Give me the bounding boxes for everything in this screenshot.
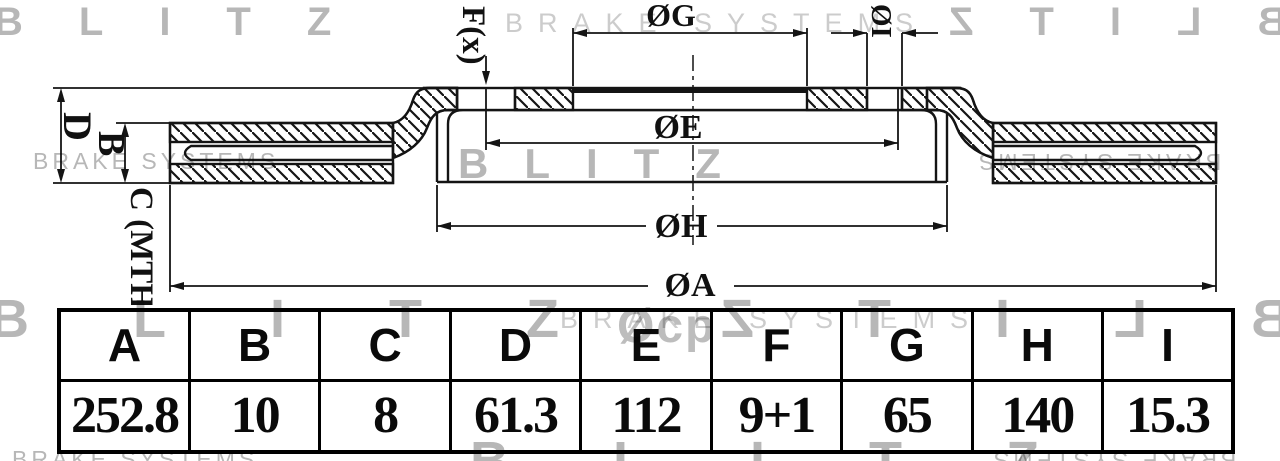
- brake-disc-cross-section-drawing: D B C (MTH) F(x) ØG ØI ØE ØH ØA: [0, 0, 1280, 305]
- dim-line-i: [831, 33, 938, 86]
- dim-label-dia-g: ØG: [646, 0, 696, 33]
- dim-line-g: [573, 28, 807, 86]
- dimension-spec-table: A B C D E F G H I 252.8 10 8 61.3 112 9+…: [57, 308, 1235, 454]
- dim-label-dia-i: ØI: [865, 4, 897, 38]
- value-h: 140: [972, 380, 1102, 452]
- dimension-labels: D B C (MTH) F(x) ØG ØI ØE ØH ØA: [55, 0, 897, 305]
- col-header-d: D: [450, 310, 580, 380]
- friction-ring-left: [170, 123, 393, 183]
- spec-table-header-row: A B C D E F G H I: [59, 310, 1233, 380]
- friction-ring-right: [993, 123, 1216, 183]
- col-header-e: E: [581, 310, 711, 380]
- col-header-f: F: [711, 310, 841, 380]
- dim-label-dia-a: ØA: [665, 267, 716, 304]
- dim-label-dia-h: ØH: [655, 208, 708, 245]
- dim-label-c-mth: C (MTH): [123, 187, 159, 305]
- col-header-i: I: [1103, 310, 1234, 380]
- value-g: 65: [842, 380, 972, 452]
- dim-label-f: F(x): [455, 6, 491, 65]
- col-header-b: B: [189, 310, 319, 380]
- value-c: 8: [320, 380, 450, 452]
- value-d: 61.3: [450, 380, 580, 452]
- col-header-g: G: [842, 310, 972, 380]
- value-i: 15.3: [1103, 380, 1234, 452]
- col-header-h: H: [972, 310, 1102, 380]
- dim-label-dia-e: ØE: [653, 109, 702, 146]
- col-header-c: C: [320, 310, 450, 380]
- value-a: 252.8: [59, 380, 189, 452]
- pilot-recess-band: [573, 88, 807, 93]
- value-b: 10: [189, 380, 319, 452]
- value-f: 9+1: [711, 380, 841, 452]
- brake-disc-spec-sheet: D B C (MTH) F(x) ØG ØI ØE ØH ØA A B C D …: [0, 0, 1280, 461]
- col-header-a: A: [59, 310, 189, 380]
- dim-label-b: B: [90, 131, 132, 156]
- value-e: 112: [581, 380, 711, 452]
- spec-table-value-row: 252.8 10 8 61.3 112 9+1 65 140 15.3: [59, 380, 1233, 452]
